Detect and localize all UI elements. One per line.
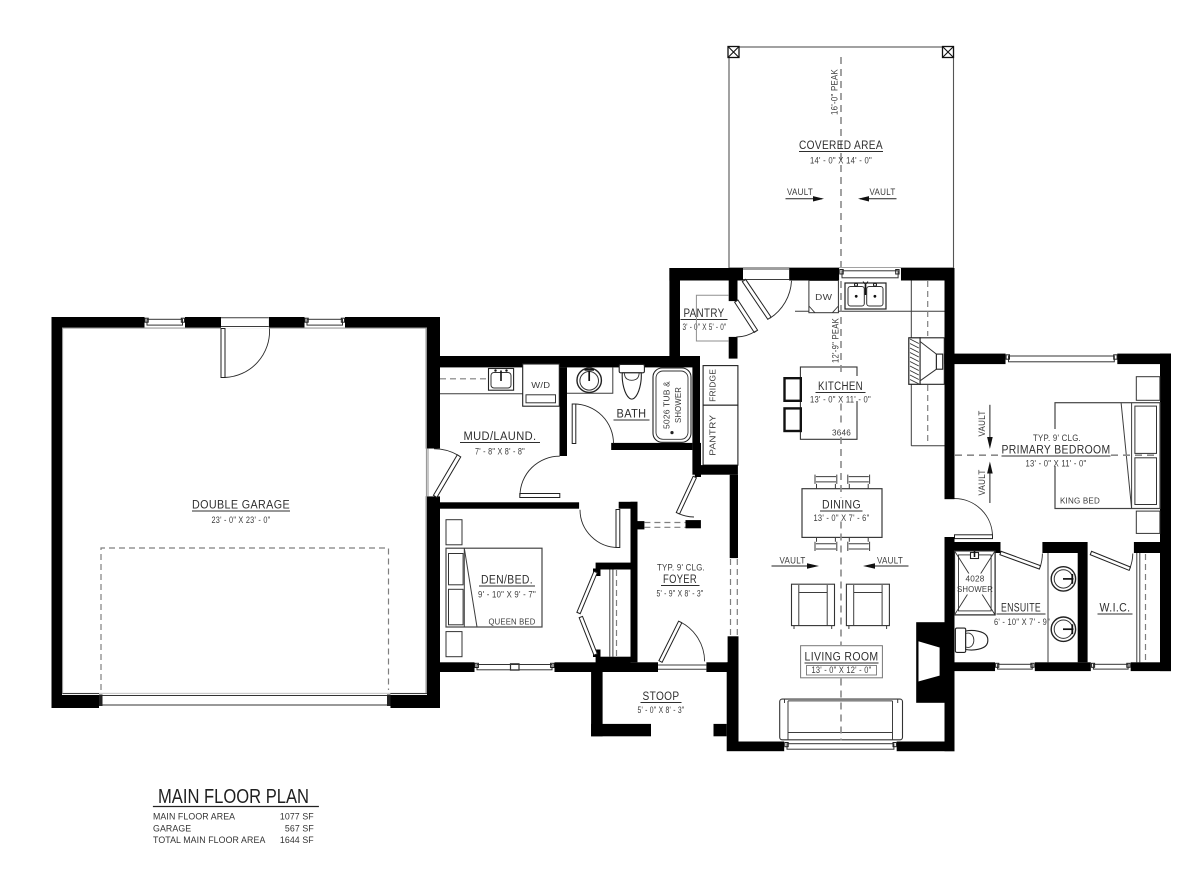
svg-text:6' - 10" X 7' - 9": 6' - 10" X 7' - 9": [994, 617, 1050, 627]
svg-text:567 SF: 567 SF: [285, 823, 314, 833]
svg-text:QUEEN BED: QUEEN BED: [489, 618, 536, 627]
svg-text:DOUBLE GARAGE: DOUBLE GARAGE: [192, 500, 290, 512]
svg-text:PRIMARY BEDROOM: PRIMARY BEDROOM: [1002, 445, 1111, 457]
svg-text:5' - 9" X 8' - 3": 5' - 9" X 8' - 3": [657, 589, 704, 599]
svg-text:VAULT: VAULT: [780, 556, 806, 566]
svg-text:FRIDGE: FRIDGE: [709, 369, 718, 402]
svg-text:7' - 8" X 8' - 8": 7' - 8" X 8' - 8": [475, 447, 525, 457]
svg-text:13' - 0" X 11' - 0": 13' - 0" X 11' - 0": [1026, 459, 1087, 469]
svg-text:13' - 0" X 11' - 0": 13' - 0" X 11' - 0": [810, 395, 871, 405]
svg-text:16'-0" PEAK: 16'-0" PEAK: [830, 69, 840, 115]
svg-text:TOTAL MAIN FLOOR AREA: TOTAL MAIN FLOOR AREA: [153, 835, 265, 845]
svg-text:VAULT: VAULT: [877, 556, 903, 566]
svg-text:DINING: DINING: [822, 500, 861, 512]
svg-text:MUD/LAUND.: MUD/LAUND.: [464, 431, 537, 443]
svg-text:KING BED: KING BED: [1060, 497, 1100, 506]
svg-text:VAULT: VAULT: [977, 410, 987, 436]
svg-text:14' - 0" X 14' - 0": 14' - 0" X 14' - 0": [810, 156, 872, 166]
svg-text:ENSUITE: ENSUITE: [1001, 603, 1041, 615]
svg-text:MAIN FLOOR AREA: MAIN FLOOR AREA: [153, 812, 235, 822]
svg-text:13' - 0" X 12' - 0": 13' - 0" X 12' - 0": [812, 665, 872, 675]
svg-text:4028: 4028: [966, 575, 985, 584]
svg-text:VAULT: VAULT: [870, 187, 896, 197]
svg-text:BATH: BATH: [617, 409, 647, 421]
svg-text:VAULT: VAULT: [977, 469, 987, 495]
svg-text:COVERED AREA: COVERED AREA: [799, 140, 883, 152]
svg-text:VAULT: VAULT: [787, 187, 813, 197]
svg-text:23' - 0" X 23' - 0": 23' - 0" X 23' - 0": [212, 515, 271, 525]
svg-text:1644 SF: 1644 SF: [280, 835, 314, 845]
svg-text:PANTRY: PANTRY: [684, 308, 725, 320]
svg-text:5026 TUB &: 5026 TUB &: [663, 381, 672, 429]
svg-text:12'-9" PEAK: 12'-9" PEAK: [831, 318, 841, 363]
svg-text:DEN/BED.: DEN/BED.: [481, 575, 533, 587]
svg-text:TYP. 9' CLG.: TYP. 9' CLG.: [1033, 433, 1081, 443]
svg-text:SHOWER: SHOWER: [674, 387, 683, 423]
svg-text:DW: DW: [815, 293, 832, 302]
svg-text:GARAGE: GARAGE: [153, 823, 191, 833]
svg-text:PANTRY: PANTRY: [709, 414, 718, 455]
svg-text:1077 SF: 1077 SF: [280, 812, 314, 822]
svg-text:LIVING ROOM: LIVING ROOM: [805, 652, 879, 664]
svg-text:KITCHEN: KITCHEN: [818, 381, 863, 393]
svg-text:5' - 0" X 8' - 3": 5' - 0" X 8' - 3": [638, 705, 685, 715]
svg-text:3646: 3646: [832, 429, 851, 438]
svg-text:TYP. 9' CLG.: TYP. 9' CLG.: [657, 563, 705, 573]
svg-text:3' - 0" X 5' - 0": 3' - 0" X 5' - 0": [683, 322, 727, 332]
svg-text:W.I.C.: W.I.C.: [1100, 603, 1131, 615]
svg-text:SHOWER: SHOWER: [957, 585, 993, 594]
svg-text:W/D: W/D: [531, 381, 550, 390]
svg-text:STOOP: STOOP: [643, 691, 680, 703]
svg-text:FOYER: FOYER: [663, 574, 697, 586]
svg-text:MAIN FLOOR PLAN: MAIN FLOOR PLAN: [158, 786, 309, 808]
svg-text:9' - 10" X 9' - 7": 9' - 10" X 9' - 7": [478, 590, 536, 600]
